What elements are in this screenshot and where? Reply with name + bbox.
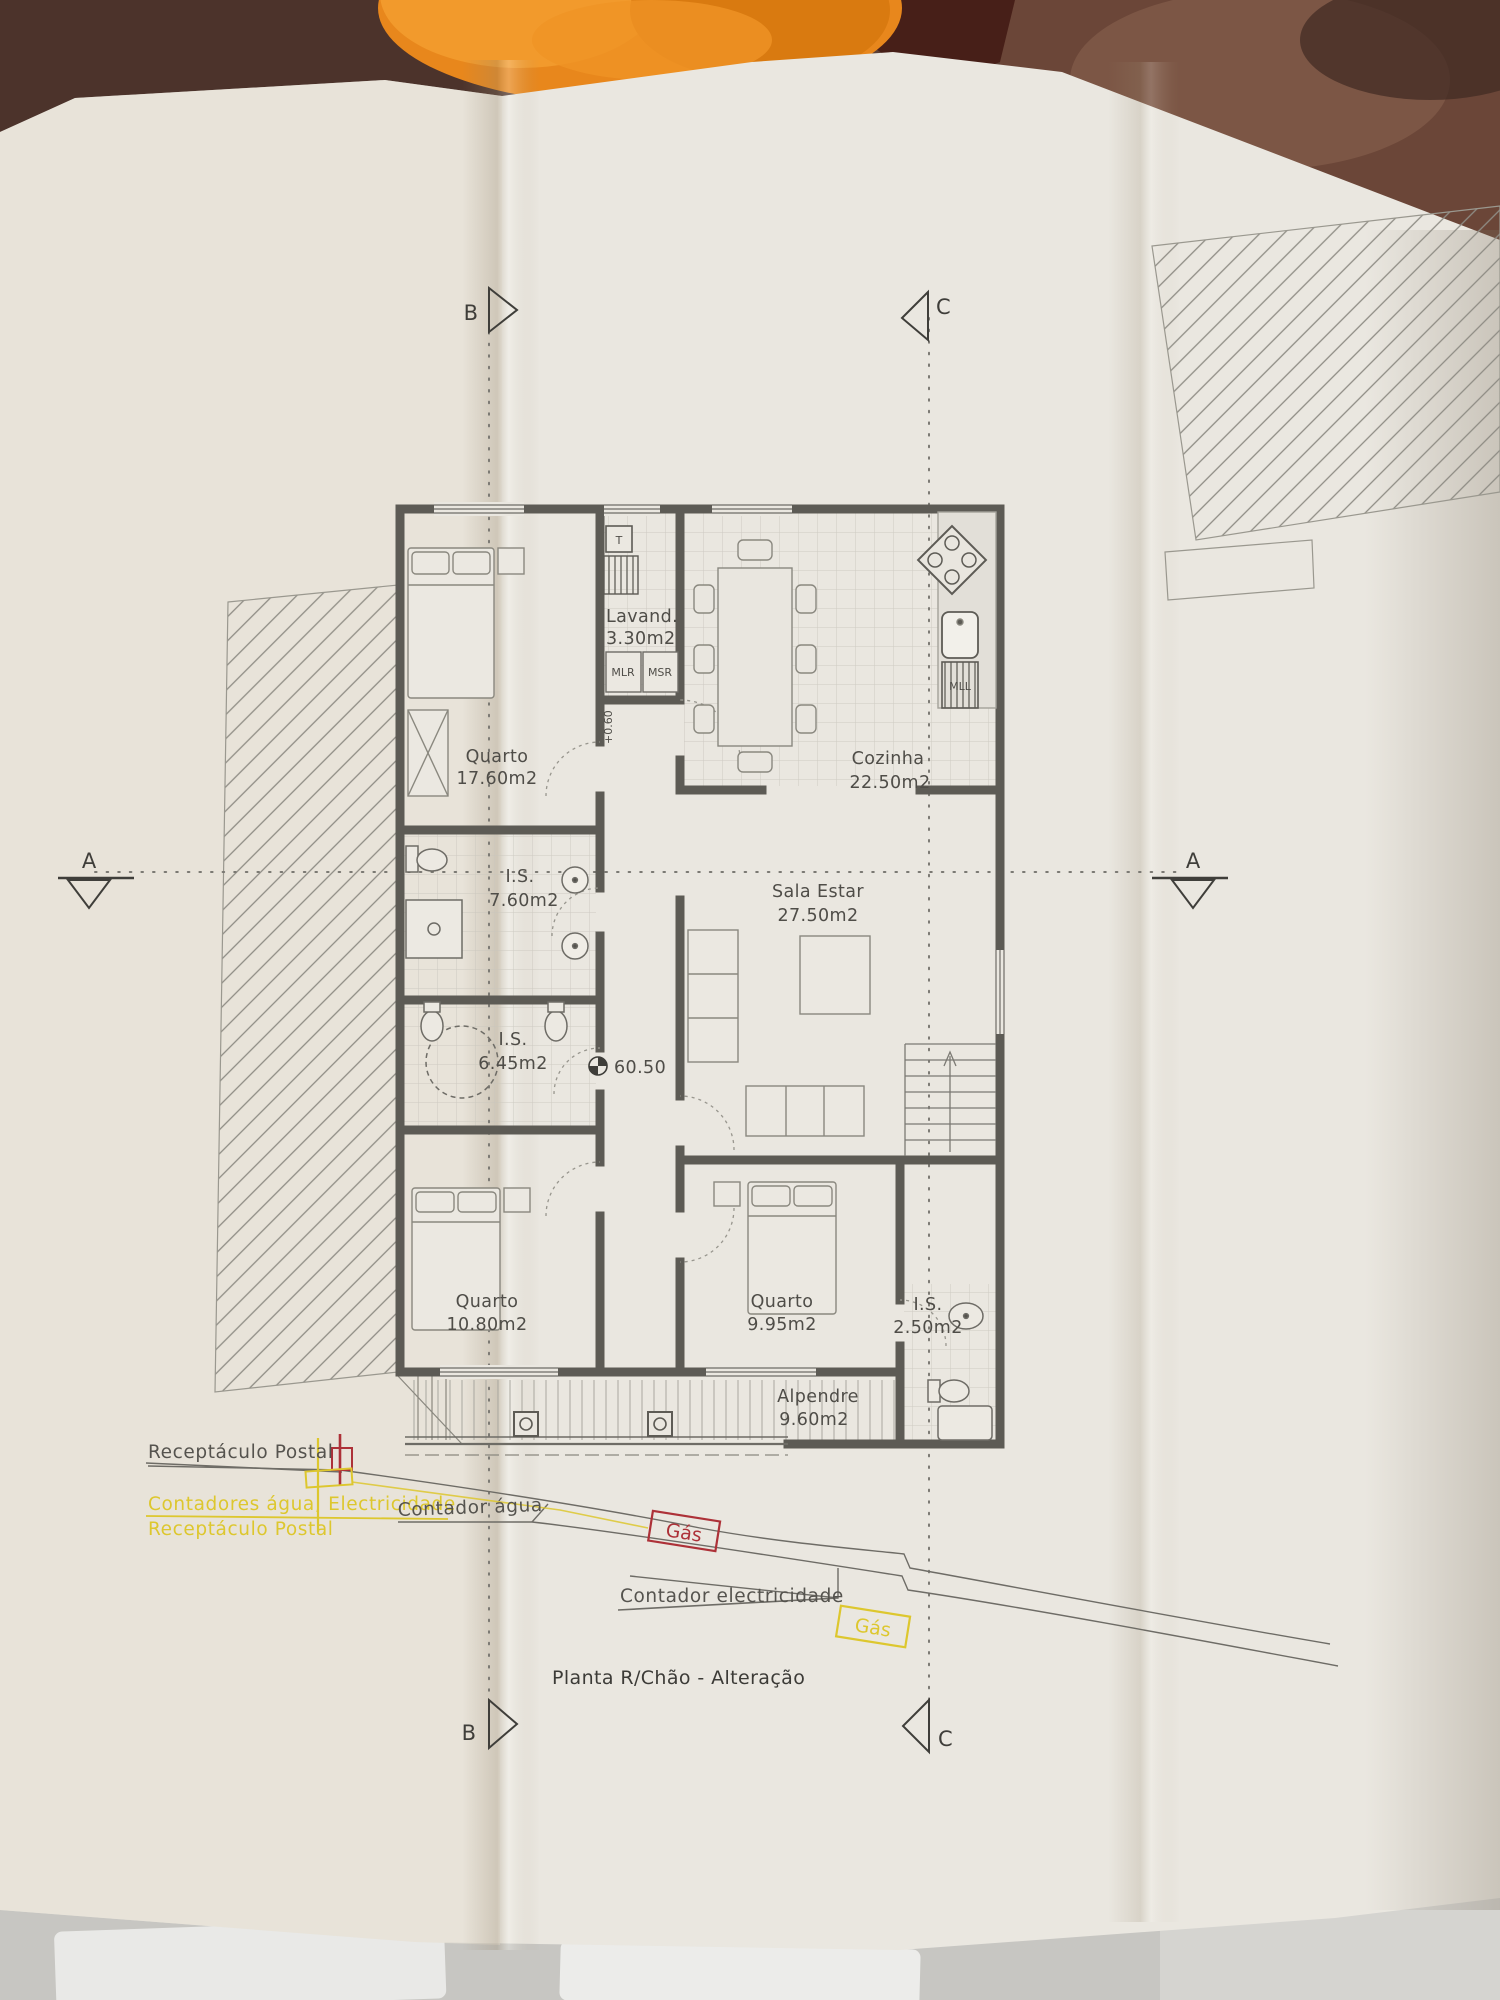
room-area: 9.95m2	[747, 1315, 817, 1335]
level-marker	[589, 1057, 607, 1075]
photo-scene: B C A A B C Quarto 17.60m2 Lavand. 3.30m…	[0, 0, 1500, 2000]
window	[712, 502, 792, 516]
dishwasher-label: MLL	[949, 680, 972, 693]
window	[706, 1365, 816, 1379]
nightstand	[498, 548, 524, 574]
window	[440, 1365, 558, 1379]
room-label: Alpendre	[777, 1387, 859, 1407]
pillow	[453, 552, 490, 574]
room-label: Quarto	[466, 747, 529, 767]
water-heater-label: T	[615, 534, 623, 547]
room-label: I.S.	[499, 1030, 528, 1050]
chair	[738, 540, 772, 560]
room-label: Sala Estar	[772, 882, 864, 902]
room-area: 17.60m2	[456, 769, 537, 789]
chair	[694, 705, 714, 733]
nightstand	[714, 1182, 740, 1206]
marker-letter-a-left: A	[82, 849, 97, 873]
room-label: Lavand.	[606, 607, 678, 627]
room-label: Quarto	[456, 1292, 519, 1312]
chair	[796, 585, 816, 613]
annotation-receptaculo-postal: Receptáculo Postal	[148, 1442, 334, 1463]
room-area: 7.60m2	[489, 891, 559, 911]
window	[604, 502, 660, 516]
pillow	[412, 552, 449, 574]
marker-letter-a-right: A	[1186, 849, 1201, 873]
nightstand	[504, 1188, 530, 1212]
toilet	[939, 1380, 969, 1402]
toilet	[421, 1011, 443, 1041]
room-area: 27.50m2	[777, 906, 858, 926]
chair	[796, 705, 816, 733]
annotation-contador-electricidade: Contador electricidade	[620, 1586, 844, 1607]
porch-column	[514, 1412, 538, 1436]
window	[993, 950, 1007, 1034]
room-area: 3.30m2	[606, 629, 676, 649]
room-label: I.S.	[506, 867, 535, 887]
room-label: Quarto	[751, 1292, 814, 1312]
sofa	[746, 1086, 864, 1136]
room-area: 9.60m2	[779, 1410, 849, 1430]
toilet	[417, 849, 447, 871]
coffee-table	[800, 936, 870, 1014]
washer-label: MLR	[611, 666, 635, 679]
sofa	[688, 930, 738, 1062]
neighbour-building-hatch-left	[215, 585, 398, 1392]
neighbour-building-hatch-right	[1152, 206, 1500, 540]
room-area: 10.80m2	[446, 1315, 527, 1335]
dining-table	[718, 568, 792, 746]
room-area: 6.45m2	[478, 1054, 548, 1074]
pillow	[752, 1186, 790, 1206]
shower	[406, 900, 462, 958]
bidet	[545, 1011, 567, 1041]
chair	[694, 585, 714, 613]
marker-letter-b-top: B	[464, 301, 478, 325]
marker-letter-c-top: C	[936, 295, 951, 319]
pillow	[416, 1192, 454, 1212]
drawing-title: Planta R/Chão - Alteração	[552, 1667, 805, 1689]
marker-letter-c-bottom: C	[938, 1727, 953, 1751]
chair	[796, 645, 816, 673]
window	[434, 502, 524, 516]
room-label: I.S.	[914, 1295, 943, 1315]
annotation-receptaculo-postal-2: Receptáculo Postal	[148, 1519, 334, 1540]
marker-letter-b-bottom: B	[462, 1721, 476, 1745]
porch-column	[648, 1412, 672, 1436]
shower-tray	[938, 1406, 992, 1440]
floor-level-value: 60.50	[614, 1058, 666, 1078]
room-area: 2.50m2	[893, 1318, 963, 1338]
chair	[738, 752, 772, 772]
dryer-label: MSR	[648, 666, 672, 679]
pillow	[458, 1192, 496, 1212]
boiler	[604, 556, 638, 594]
room-area: 22.50m2	[849, 773, 930, 793]
pillow	[794, 1186, 832, 1206]
room-label: Cozinha	[852, 749, 925, 769]
chair	[694, 645, 714, 673]
step-level-value: +0.60	[602, 710, 615, 744]
